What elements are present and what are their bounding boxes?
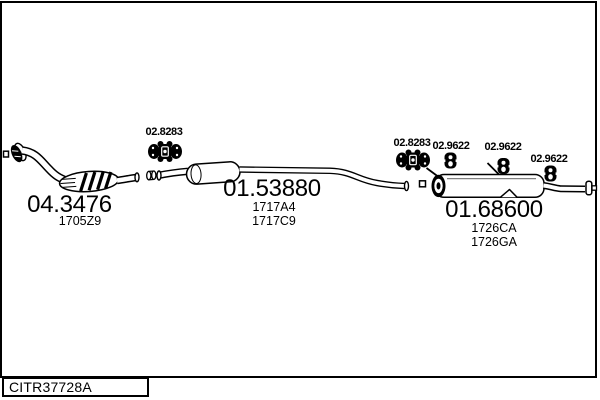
hanger-1-part-number: 02.9622 <box>428 141 474 152</box>
exhaust-clamp-icon <box>396 150 430 171</box>
rear-silencer-sub-number-2: 1726GA <box>468 236 520 249</box>
joint-gasket <box>420 181 426 187</box>
centre-silencer-sub-number-2: 1717C9 <box>248 215 300 228</box>
hanger-3-part-number: 02.9622 <box>526 154 572 165</box>
pipe-end-flare <box>135 173 139 182</box>
centre-silencer-part-number: 01.53880 <box>222 177 322 201</box>
diagram-code: CITR37728A <box>4 379 92 395</box>
centre-silencer-sub-number-1: 1717A4 <box>248 201 300 214</box>
pipe-end-flare <box>405 181 409 190</box>
hanger-2-part-number: 02.9622 <box>480 142 526 153</box>
joint-sleeve <box>147 171 156 180</box>
rubber-hanger-icon <box>543 166 557 182</box>
catalytic-converter <box>59 169 119 193</box>
diagram-code-box: CITR37728A <box>2 377 149 397</box>
flange-bolt <box>4 151 9 157</box>
clamp-left-part-number: 02.8283 <box>141 127 187 138</box>
tailpipe-tip <box>592 186 597 190</box>
tailpipe-end-cap <box>586 181 592 195</box>
front-pipe-section <box>4 142 156 194</box>
rear-silencer-body <box>435 175 544 198</box>
rear-silencer-part-number: 01.68600 <box>444 198 544 222</box>
front-pipe-sub-number: 1705Z9 <box>54 215 106 228</box>
rubber-hanger-icon <box>443 153 457 169</box>
exhaust-clamp-icon <box>148 141 182 162</box>
exhaust-diagram-page: 02.8283 02.8283 02.9622 02.9622 02.9622 … <box>0 0 600 400</box>
hanger-rod <box>427 168 439 177</box>
rear-silencer-sub-number-1: 1726CA <box>468 222 520 235</box>
rubber-hanger-icon <box>496 158 510 174</box>
